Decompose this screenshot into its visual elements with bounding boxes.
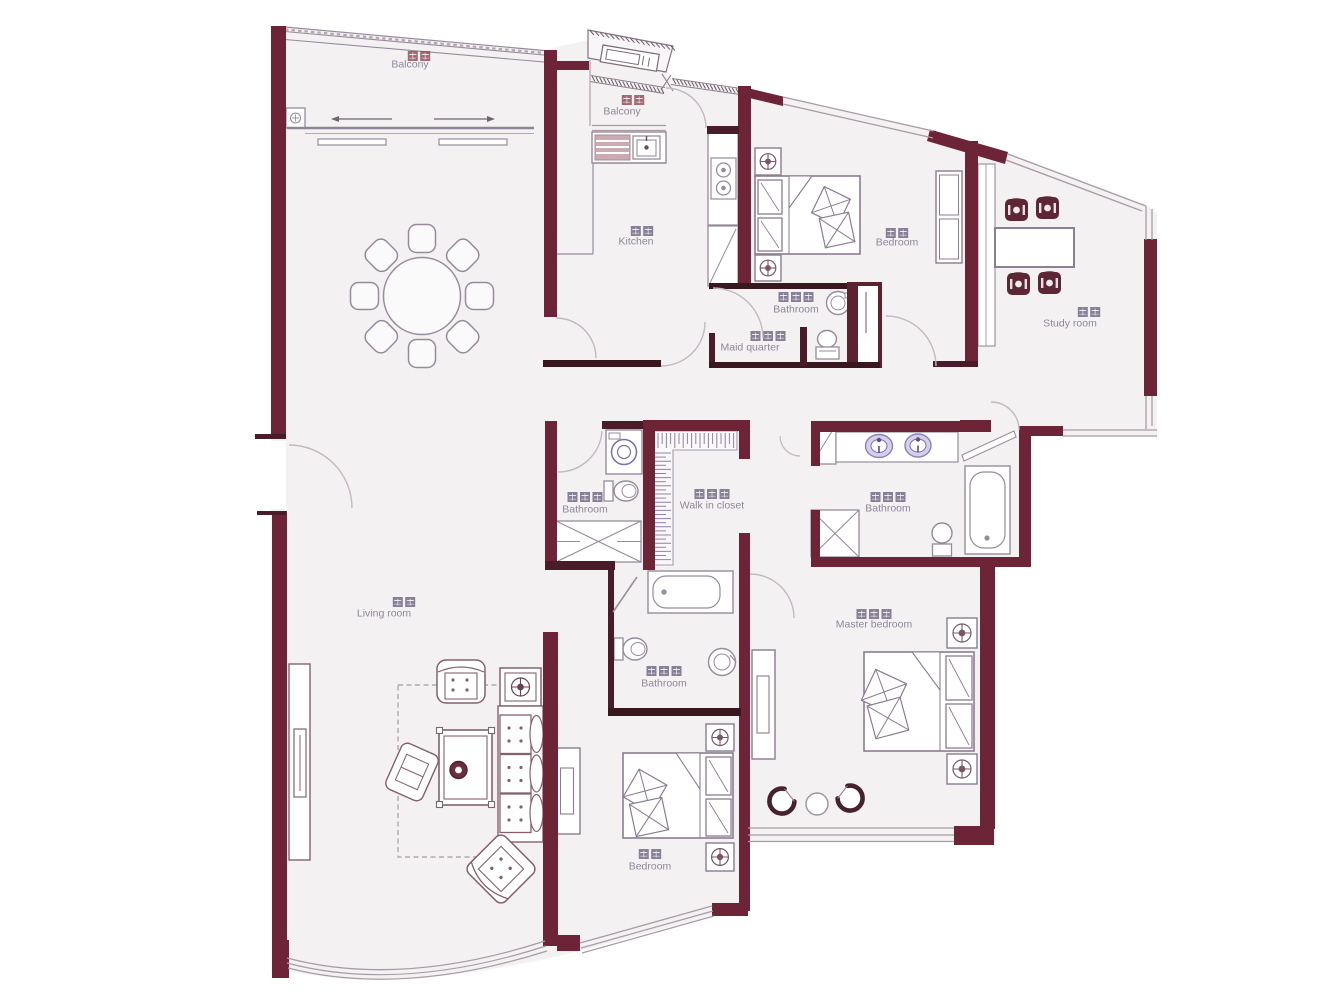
svg-text:Balcony: Balcony <box>391 59 429 71</box>
svg-text:Bathroom: Bathroom <box>865 503 911 515</box>
svg-text:Bedroom: Bedroom <box>876 237 919 249</box>
svg-text:Bathroom: Bathroom <box>773 304 819 316</box>
svg-text:Study room: Study room <box>1043 318 1097 330</box>
svg-text:Bathroom: Bathroom <box>562 504 608 516</box>
svg-text:Master bedroom: Master bedroom <box>836 619 913 631</box>
svg-text:Kitchen: Kitchen <box>618 236 653 248</box>
svg-text:Bedroom: Bedroom <box>629 861 672 873</box>
svg-text:Maid quarter: Maid quarter <box>721 342 780 354</box>
svg-text:Bathroom: Bathroom <box>641 678 687 690</box>
svg-text:Walk in closet: Walk in closet <box>680 500 744 512</box>
svg-text:Living room: Living room <box>357 608 412 620</box>
svg-text:Balcony: Balcony <box>603 106 641 118</box>
